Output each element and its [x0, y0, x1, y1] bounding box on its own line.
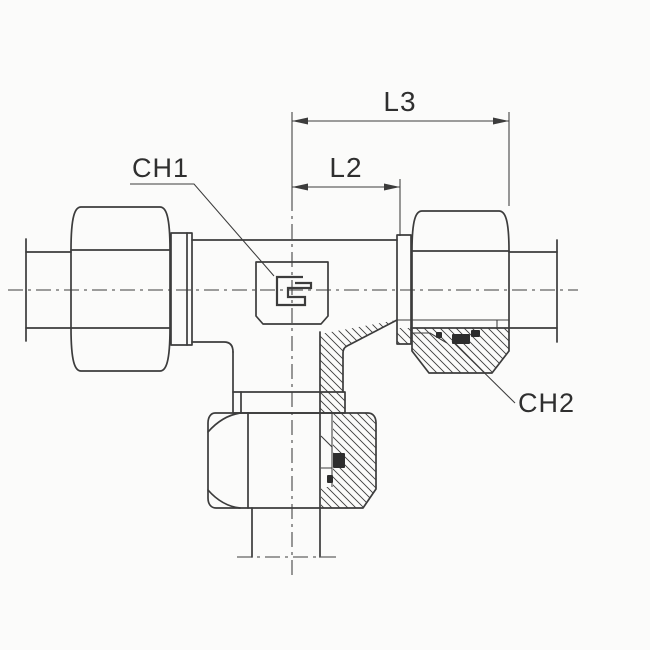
bottom-ferrule-seal — [333, 453, 345, 468]
brand-stamp-glyph — [277, 277, 311, 305]
tee-fitting-section-drawing: L3 L2 CH1 CH2 — [0, 0, 650, 650]
l3-arrow-left — [292, 118, 308, 125]
l2-arrow-left — [292, 184, 308, 191]
right-nut — [412, 211, 509, 373]
left-washer — [171, 233, 192, 345]
right-ferrule-seal-small — [471, 330, 480, 337]
right-tube — [411, 240, 557, 342]
l3-arrow-right — [493, 118, 509, 125]
bottom-nut-section-hatch-2 — [321, 487, 333, 508]
left-nut-outline — [71, 207, 170, 371]
left-nut — [71, 207, 170, 371]
l3-label: L3 — [383, 86, 416, 117]
l2-label: L2 — [329, 152, 362, 183]
right-ferrule-seal — [452, 334, 470, 344]
right-cone-seal-dot — [436, 332, 442, 338]
ch1-leader-line — [130, 184, 274, 276]
left-washer-outline — [171, 233, 192, 345]
technical-drawing-canvas: L3 L2 CH1 CH2 — [0, 0, 650, 650]
bottom-washer-hatch — [320, 392, 345, 413]
l2-arrow-right — [384, 184, 400, 191]
body-bottom-left-edge — [192, 342, 233, 352]
ch2-label: CH2 — [518, 388, 575, 418]
bottom-ferrule-seal-small — [327, 475, 333, 483]
body-flange-hatch — [320, 320, 397, 392]
bottom-washer — [233, 392, 345, 413]
branch — [233, 332, 320, 557]
bottom-nut-chamfer-arcs — [208, 413, 240, 508]
dimension-l2: L2 — [292, 152, 400, 236]
bottom-nut-cone-lines — [321, 436, 332, 468]
left-nut-hex-edges — [71, 250, 170, 328]
right-ring-section-hatch — [397, 328, 411, 344]
body-sleeve-end-line — [397, 320, 509, 328]
callout-ch1: CH1 — [130, 153, 274, 276]
ch1-label: CH1 — [132, 153, 189, 183]
